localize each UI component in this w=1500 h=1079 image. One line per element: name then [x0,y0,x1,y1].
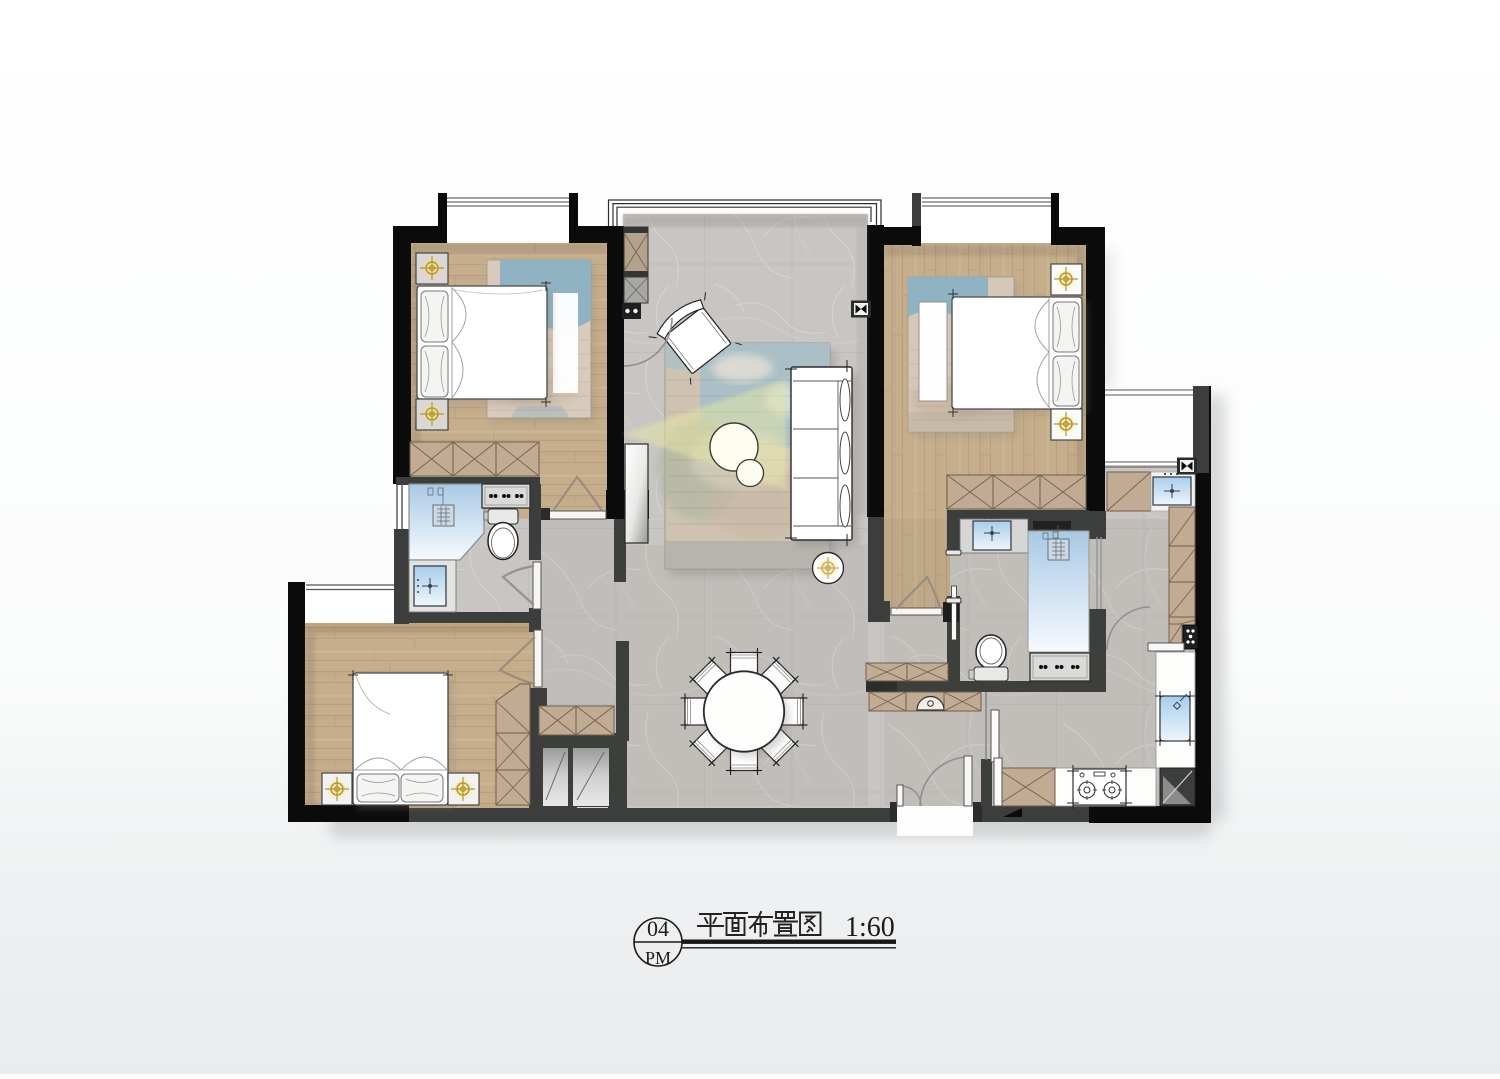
svg-text:04: 04 [647,916,669,941]
svg-text:PM: PM [645,948,671,968]
svg-text:1:60: 1:60 [845,912,895,943]
